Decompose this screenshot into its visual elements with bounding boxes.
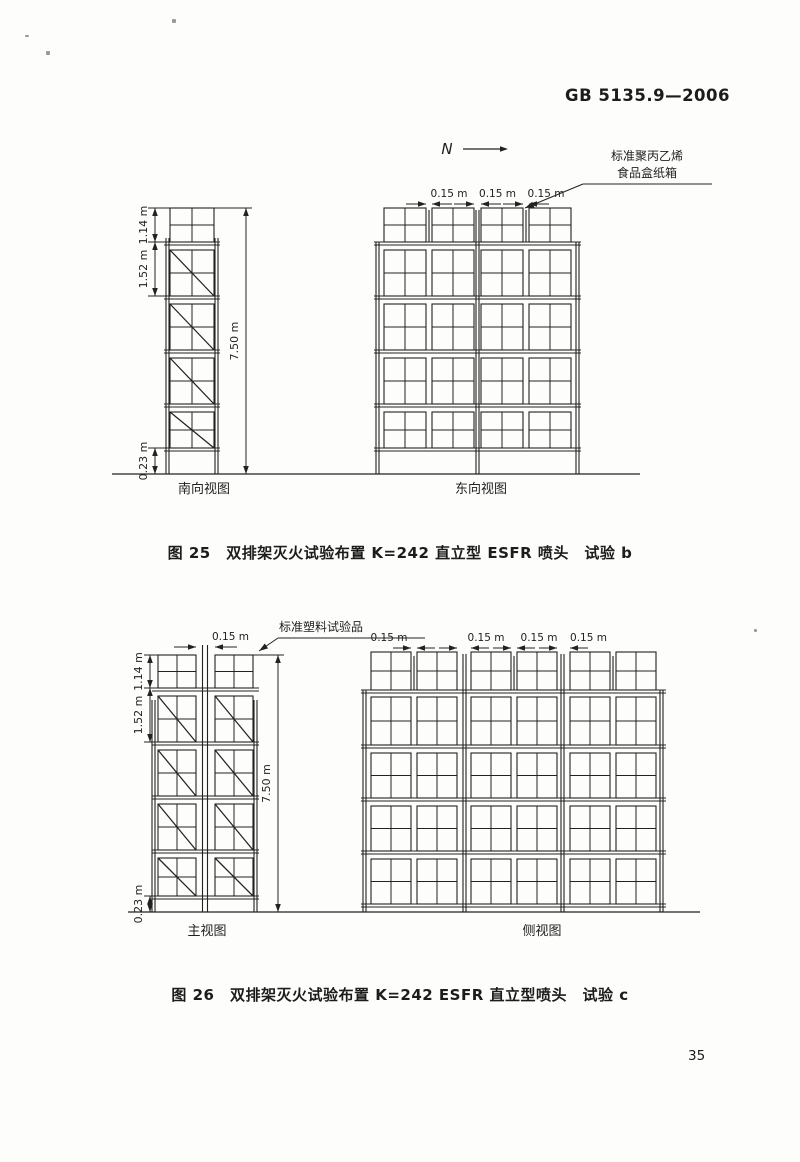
arrowhead-icon — [259, 643, 268, 651]
arrowhead-icon — [152, 234, 158, 242]
dimension-label: 0.15 m — [521, 632, 558, 644]
arrowhead-icon — [503, 645, 511, 651]
scan-artifact — [172, 19, 176, 23]
arrowhead-icon — [515, 201, 523, 207]
arrowhead-icon — [449, 645, 457, 651]
dimension-label: 0.15 m — [212, 631, 249, 643]
arrowhead-icon — [471, 645, 479, 651]
arrowhead-icon — [403, 645, 411, 651]
dimension-label: 0.15 m — [468, 632, 505, 644]
dimension-label: 0.15 m — [479, 188, 516, 200]
annotation-text: 标准聚丙乙烯 — [611, 149, 683, 163]
arrowhead-icon — [517, 645, 525, 651]
arrowhead-icon — [500, 146, 508, 152]
figure-26-diagram: 0.15 m1.14 m1.52 m0.23 m7.50 m标准塑料试验品主视图… — [0, 600, 800, 950]
arrowhead-icon — [481, 201, 489, 207]
page-number: 35 — [688, 1048, 705, 1064]
view-label: 南向视图 — [178, 481, 230, 497]
arrowhead-icon — [152, 242, 158, 250]
arrowhead-icon — [152, 466, 158, 474]
arrowhead-icon — [152, 448, 158, 456]
view-label: 侧视图 — [522, 924, 561, 939]
arrowhead-icon — [215, 644, 223, 650]
standard-number-header: GB 5135.9—2006 — [0, 86, 730, 105]
view-label: 主视图 — [187, 924, 226, 939]
dimension-label: 0.15 m — [371, 632, 408, 644]
arrowhead-icon — [432, 201, 440, 207]
dimension-label: 1.14 m — [137, 206, 150, 245]
dimension-label: 0.15 m — [570, 632, 607, 644]
arrowhead-icon — [570, 645, 578, 651]
dimension-label: 7.50 m — [260, 764, 273, 803]
figure-25-caption: 图 25 双排架灭火试验布置 K=242 直立型 ESFR 喷头 试验 b — [0, 542, 800, 563]
dimension-label: 1.52 m — [132, 696, 145, 735]
dimension-label: 0.15 m — [528, 188, 565, 200]
dimension-label: 0.15 m — [431, 188, 468, 200]
arrowhead-icon — [152, 288, 158, 296]
arrowhead-icon — [147, 680, 153, 688]
arrowhead-icon — [243, 466, 249, 474]
arrowhead-icon — [147, 655, 153, 663]
arrowhead-icon — [466, 201, 474, 207]
dimension-label: 0.23 m — [132, 885, 145, 924]
arrowhead-icon — [275, 904, 281, 912]
arrowhead-icon — [147, 688, 153, 696]
arrowhead-icon — [275, 655, 281, 663]
view-label: 东向视图 — [455, 481, 507, 497]
figure-25-diagram: N标准聚丙乙烯食品盒纸箱1.14 m1.52 m0.23 m7.50 m南向视图… — [0, 130, 800, 515]
annotation-text: 标准塑料试验品 — [279, 619, 363, 634]
dimension-label: 1.52 m — [137, 250, 150, 289]
arrowhead-icon — [418, 201, 426, 207]
scan-artifact — [25, 35, 29, 37]
document-page: GB 5135.9—2006 N标准聚丙乙烯食品盒纸箱1.14 m1.52 m0… — [0, 0, 800, 1162]
figure-26-caption: 图 26 双排架灭火试验布置 K=242 ESFR 直立型喷头 试验 c — [0, 984, 800, 1005]
arrowhead-icon — [188, 644, 196, 650]
north-label: N — [441, 140, 452, 158]
arrowhead-icon — [417, 645, 425, 651]
scan-artifact — [46, 51, 50, 55]
arrowhead-icon — [243, 208, 249, 216]
arrowhead-icon — [549, 645, 557, 651]
annotation-text: 食品盒纸箱 — [617, 165, 677, 180]
arrowhead-icon — [152, 208, 158, 216]
dimension-label: 7.50 m — [228, 322, 241, 361]
dimension-label: 1.14 m — [132, 652, 145, 691]
